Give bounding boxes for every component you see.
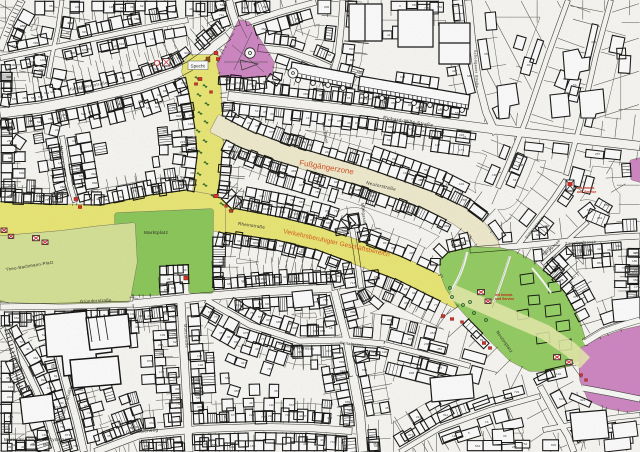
svg-text:946: 946 <box>154 67 159 71</box>
svg-text:941: 941 <box>355 121 360 125</box>
svg-text:200: 200 <box>195 378 200 382</box>
svg-text:375: 375 <box>197 405 202 409</box>
svg-text:122: 122 <box>8 385 13 389</box>
svg-text:290: 290 <box>138 99 143 103</box>
svg-text:562: 562 <box>134 17 139 21</box>
svg-text:104: 104 <box>188 122 193 126</box>
svg-text:43: 43 <box>26 347 30 351</box>
svg-text:110: 110 <box>403 171 408 175</box>
svg-text:555: 555 <box>31 96 36 100</box>
svg-text:920: 920 <box>371 350 376 354</box>
svg-text:350: 350 <box>141 187 146 191</box>
svg-text:909: 909 <box>265 302 270 306</box>
svg-text:49: 49 <box>249 401 253 405</box>
svg-text:377: 377 <box>408 433 413 437</box>
svg-text:634: 634 <box>6 75 11 79</box>
svg-text:905: 905 <box>355 188 360 192</box>
svg-text:377: 377 <box>573 295 578 299</box>
svg-text:308: 308 <box>518 163 523 167</box>
svg-text:247: 247 <box>8 184 13 188</box>
svg-text:997: 997 <box>234 340 239 344</box>
svg-text:378: 378 <box>268 160 273 164</box>
svg-text:888: 888 <box>20 24 25 28</box>
svg-text:399: 399 <box>33 41 38 45</box>
svg-text:996: 996 <box>392 157 397 161</box>
svg-text:517: 517 <box>255 109 260 113</box>
svg-text:571: 571 <box>20 340 25 344</box>
svg-text:6: 6 <box>66 443 68 447</box>
svg-text:975: 975 <box>325 209 330 213</box>
svg-text:Specht: Specht <box>191 64 206 69</box>
svg-text:351: 351 <box>104 198 109 202</box>
svg-text:784: 784 <box>172 332 177 336</box>
svg-text:723: 723 <box>87 411 92 415</box>
svg-text:452: 452 <box>437 347 442 351</box>
svg-text:351: 351 <box>373 442 378 446</box>
svg-text:40: 40 <box>299 414 303 418</box>
svg-text:894: 894 <box>176 114 181 118</box>
svg-text:604: 604 <box>334 180 339 184</box>
svg-text:547: 547 <box>387 138 392 142</box>
svg-text:889: 889 <box>255 277 260 281</box>
svg-text:64: 64 <box>421 129 425 133</box>
svg-text:513: 513 <box>513 178 518 182</box>
svg-text:765: 765 <box>60 425 65 429</box>
svg-text:180: 180 <box>632 259 637 263</box>
svg-text:386: 386 <box>255 124 260 128</box>
svg-text:871: 871 <box>303 414 308 418</box>
svg-text:353: 353 <box>178 183 183 187</box>
svg-text:774: 774 <box>434 303 439 307</box>
svg-text:896: 896 <box>70 51 75 55</box>
svg-text:558: 558 <box>604 203 609 207</box>
svg-text:479: 479 <box>418 178 423 182</box>
svg-text:511: 511 <box>443 413 448 417</box>
svg-text:668: 668 <box>8 156 13 160</box>
svg-text:658: 658 <box>374 275 379 279</box>
svg-text:453: 453 <box>6 376 11 380</box>
svg-text:497: 497 <box>244 152 249 156</box>
svg-text:522: 522 <box>340 369 345 373</box>
svg-text:307: 307 <box>391 246 396 250</box>
svg-text:864: 864 <box>416 106 421 110</box>
svg-text:249: 249 <box>175 406 180 410</box>
svg-text:851: 851 <box>503 396 508 400</box>
svg-text:730: 730 <box>170 315 175 319</box>
svg-text:879: 879 <box>147 359 152 363</box>
svg-text:517: 517 <box>30 314 35 318</box>
svg-text:1: 1 <box>166 441 168 445</box>
svg-text:450: 450 <box>295 17 300 21</box>
svg-text:353: 353 <box>430 331 435 335</box>
svg-text:802: 802 <box>253 241 258 245</box>
svg-text:886: 886 <box>163 89 168 93</box>
svg-text:575: 575 <box>314 176 319 180</box>
svg-text:969: 969 <box>137 73 142 77</box>
svg-text:15: 15 <box>329 326 333 330</box>
svg-text:771: 771 <box>214 315 219 319</box>
svg-text:725: 725 <box>242 6 247 10</box>
svg-text:378: 378 <box>269 130 274 134</box>
svg-text:63: 63 <box>43 443 47 447</box>
svg-text:721: 721 <box>56 116 61 120</box>
svg-text:650: 650 <box>176 396 181 400</box>
svg-text:782: 782 <box>544 224 549 228</box>
svg-text:999: 999 <box>171 286 176 290</box>
svg-text:861: 861 <box>319 93 324 97</box>
svg-text:601: 601 <box>559 397 564 401</box>
svg-text:160: 160 <box>250 444 255 448</box>
svg-text:148: 148 <box>364 234 369 238</box>
svg-text:621: 621 <box>236 303 241 307</box>
svg-text:516: 516 <box>225 78 230 82</box>
svg-text:352: 352 <box>78 388 83 392</box>
svg-text:16: 16 <box>485 420 489 424</box>
svg-text:808: 808 <box>261 277 266 281</box>
svg-text:878: 878 <box>155 105 160 109</box>
svg-text:35: 35 <box>391 101 395 105</box>
svg-text:830: 830 <box>258 302 263 306</box>
svg-text:719: 719 <box>282 167 287 171</box>
svg-text:455: 455 <box>294 276 299 280</box>
svg-text:644: 644 <box>326 276 331 280</box>
svg-text:301: 301 <box>270 112 275 116</box>
svg-text:947: 947 <box>412 291 417 295</box>
svg-text:96: 96 <box>227 335 231 339</box>
svg-text:293: 293 <box>268 414 273 418</box>
svg-text:542: 542 <box>475 444 480 448</box>
svg-text:197: 197 <box>435 143 440 147</box>
svg-text:640: 640 <box>183 184 188 188</box>
svg-text:242: 242 <box>7 395 12 399</box>
svg-text:203: 203 <box>218 26 223 30</box>
svg-text:951: 951 <box>366 158 371 162</box>
svg-text:343: 343 <box>50 90 55 94</box>
svg-text:807: 807 <box>465 239 470 243</box>
svg-text:886: 886 <box>92 181 97 185</box>
svg-text:379: 379 <box>78 182 83 186</box>
svg-text:781: 781 <box>86 47 91 51</box>
svg-text:273: 273 <box>172 309 177 313</box>
svg-text:56: 56 <box>293 138 297 142</box>
svg-text:41: 41 <box>387 33 391 37</box>
svg-text:309: 309 <box>310 218 315 222</box>
svg-text:734: 734 <box>330 440 335 444</box>
svg-text:53: 53 <box>12 44 16 48</box>
svg-text:829: 829 <box>408 337 413 341</box>
svg-text:542: 542 <box>229 445 234 449</box>
svg-text:548: 548 <box>313 329 318 333</box>
svg-text:729: 729 <box>514 390 519 394</box>
svg-text:108: 108 <box>130 312 135 316</box>
svg-text:802: 802 <box>235 150 240 154</box>
svg-text:610: 610 <box>587 208 592 212</box>
svg-text:313: 313 <box>237 239 242 243</box>
svg-text:334: 334 <box>149 421 154 425</box>
svg-text:615: 615 <box>12 443 17 447</box>
svg-text:378: 378 <box>343 265 348 269</box>
svg-text:703: 703 <box>622 266 627 270</box>
svg-text:735: 735 <box>551 265 556 269</box>
svg-text:96: 96 <box>341 441 345 445</box>
svg-text:498: 498 <box>327 416 332 420</box>
svg-text:109: 109 <box>160 333 165 337</box>
svg-text:746: 746 <box>7 121 12 125</box>
svg-text:185: 185 <box>146 106 151 110</box>
svg-text:824: 824 <box>350 58 355 62</box>
svg-text:Marie-Schongauer-Gymnasium: Marie-Schongauer-Gymnasium <box>4 437 76 442</box>
svg-text:81: 81 <box>54 374 58 378</box>
svg-text:622: 622 <box>119 42 124 46</box>
svg-text:250: 250 <box>7 139 12 143</box>
svg-text:193: 193 <box>452 434 457 438</box>
svg-text:347: 347 <box>210 356 215 360</box>
svg-text:556: 556 <box>79 174 84 178</box>
svg-text:765: 765 <box>323 298 328 302</box>
svg-text:298: 298 <box>451 243 456 247</box>
svg-text:384: 384 <box>437 5 442 9</box>
svg-text:864: 864 <box>204 442 209 446</box>
svg-text:388: 388 <box>159 352 164 356</box>
svg-text:41: 41 <box>167 277 171 281</box>
svg-text:5: 5 <box>215 438 217 442</box>
svg-text:975: 975 <box>243 331 248 335</box>
svg-text:650: 650 <box>173 376 178 380</box>
svg-text:887: 887 <box>263 80 268 84</box>
svg-text:907: 907 <box>536 233 541 237</box>
svg-text:580: 580 <box>196 396 201 400</box>
svg-text:233: 233 <box>191 146 196 150</box>
svg-text:525: 525 <box>349 272 354 276</box>
svg-text:801: 801 <box>163 129 168 133</box>
svg-text:83: 83 <box>527 63 531 67</box>
svg-text:367: 367 <box>219 331 224 335</box>
svg-text:709: 709 <box>224 184 229 188</box>
svg-text:409: 409 <box>259 194 264 198</box>
svg-text:499: 499 <box>350 310 355 314</box>
svg-text:211: 211 <box>273 78 278 82</box>
svg-text:591: 591 <box>401 203 406 207</box>
svg-text:707: 707 <box>370 282 375 286</box>
svg-text:498: 498 <box>409 251 414 255</box>
svg-text:321: 321 <box>580 398 585 402</box>
svg-text:180: 180 <box>298 350 303 354</box>
svg-text:682: 682 <box>14 316 19 320</box>
svg-text:355: 355 <box>227 282 232 286</box>
svg-text:705: 705 <box>285 413 290 417</box>
svg-text:286: 286 <box>337 119 342 123</box>
svg-text:308: 308 <box>175 387 180 391</box>
svg-text:910: 910 <box>303 216 308 220</box>
svg-text:und Service: und Service <box>495 297 514 301</box>
svg-text:211: 211 <box>416 415 421 419</box>
svg-text:758: 758 <box>48 117 53 121</box>
svg-text:898: 898 <box>228 145 233 149</box>
svg-text:688: 688 <box>388 125 393 129</box>
svg-text:527: 527 <box>199 390 204 394</box>
svg-text:429: 429 <box>338 351 343 355</box>
svg-text:482: 482 <box>291 169 296 173</box>
svg-text:470: 470 <box>439 131 444 135</box>
svg-text:417: 417 <box>241 361 246 365</box>
svg-text:526: 526 <box>459 241 464 245</box>
svg-text:338: 338 <box>404 301 409 305</box>
svg-text:140: 140 <box>556 372 561 376</box>
svg-text:763: 763 <box>290 198 295 202</box>
svg-text:433: 433 <box>347 121 352 125</box>
svg-text:244: 244 <box>158 443 163 447</box>
svg-text:33: 33 <box>503 434 507 438</box>
svg-text:787: 787 <box>254 204 259 208</box>
svg-text:323: 323 <box>597 247 602 251</box>
svg-text:139: 139 <box>208 310 213 314</box>
svg-text:525: 525 <box>81 112 86 116</box>
svg-text:826: 826 <box>551 443 556 447</box>
svg-text:387: 387 <box>274 389 279 393</box>
svg-text:433: 433 <box>147 314 152 318</box>
svg-text:306: 306 <box>292 326 297 330</box>
svg-text:99: 99 <box>361 355 365 359</box>
svg-text:190: 190 <box>349 186 354 190</box>
svg-text:270: 270 <box>247 121 252 125</box>
svg-text:84: 84 <box>383 241 387 245</box>
svg-text:898: 898 <box>387 318 392 322</box>
svg-text:und Service: und Service <box>577 190 596 194</box>
svg-text:95: 95 <box>62 113 66 117</box>
svg-text:516: 516 <box>263 5 268 9</box>
svg-text:568: 568 <box>220 3 225 7</box>
svg-text:19: 19 <box>306 116 310 120</box>
svg-text:663: 663 <box>200 43 205 47</box>
svg-text:316: 316 <box>130 5 135 9</box>
svg-text:80: 80 <box>294 212 298 216</box>
svg-text:543: 543 <box>424 168 429 172</box>
svg-text:359: 359 <box>107 434 112 438</box>
svg-text:953: 953 <box>84 404 89 408</box>
svg-text:97: 97 <box>118 102 122 106</box>
svg-text:243: 243 <box>55 128 60 132</box>
svg-text:278: 278 <box>208 32 213 36</box>
svg-text:404: 404 <box>184 51 189 55</box>
svg-text:734: 734 <box>349 419 354 423</box>
svg-text:674: 674 <box>400 75 405 79</box>
svg-text:353: 353 <box>234 389 239 393</box>
svg-text:215: 215 <box>180 140 185 144</box>
svg-text:38: 38 <box>578 248 582 252</box>
svg-text:888: 888 <box>38 72 43 76</box>
svg-text:53: 53 <box>573 83 577 87</box>
svg-text:316: 316 <box>290 246 295 250</box>
svg-text:47: 47 <box>66 31 70 35</box>
svg-text:884: 884 <box>44 91 49 95</box>
svg-text:250: 250 <box>26 62 31 66</box>
svg-text:928: 928 <box>120 76 125 80</box>
svg-text:582: 582 <box>290 436 295 440</box>
svg-text:166: 166 <box>61 192 66 196</box>
svg-text:482: 482 <box>39 195 44 199</box>
svg-text:433: 433 <box>320 438 325 442</box>
svg-text:352: 352 <box>607 248 612 252</box>
svg-text:146: 146 <box>40 58 45 62</box>
svg-text:363: 363 <box>267 207 272 211</box>
svg-text:838: 838 <box>409 371 414 375</box>
svg-text:175: 175 <box>459 148 464 152</box>
svg-text:886: 886 <box>30 443 35 447</box>
svg-text:712: 712 <box>172 106 177 110</box>
svg-text:586: 586 <box>357 70 362 74</box>
svg-text:143: 143 <box>571 248 576 252</box>
svg-text:865: 865 <box>345 400 350 404</box>
svg-text:483: 483 <box>51 363 56 367</box>
svg-text:722: 722 <box>287 137 292 141</box>
svg-text:472: 472 <box>591 40 596 44</box>
svg-text:196: 196 <box>198 363 203 367</box>
svg-text:475: 475 <box>634 251 639 255</box>
svg-text:970: 970 <box>88 198 93 202</box>
svg-text:118: 118 <box>382 350 387 354</box>
svg-text:682: 682 <box>307 143 312 147</box>
svg-text:965: 965 <box>31 184 36 188</box>
svg-text:356: 356 <box>484 52 489 56</box>
svg-text:286: 286 <box>158 343 163 347</box>
svg-text:247: 247 <box>326 349 331 353</box>
svg-text:755: 755 <box>461 198 466 202</box>
svg-text:485: 485 <box>247 202 252 206</box>
svg-text:666: 666 <box>326 221 331 225</box>
svg-text:39: 39 <box>256 81 260 85</box>
svg-text:62: 62 <box>140 4 144 8</box>
svg-text:301: 301 <box>266 318 271 322</box>
svg-text:999: 999 <box>181 81 186 85</box>
svg-text:268: 268 <box>60 185 65 189</box>
svg-text:179: 179 <box>634 285 639 289</box>
svg-text:954: 954 <box>320 329 325 333</box>
svg-text:778: 778 <box>5 427 10 431</box>
svg-text:79: 79 <box>245 239 249 243</box>
svg-text:3: 3 <box>399 4 401 8</box>
svg-text:54: 54 <box>238 201 242 205</box>
svg-text:382: 382 <box>633 278 638 282</box>
svg-text:669: 669 <box>412 3 417 7</box>
svg-text:462: 462 <box>135 325 140 329</box>
svg-text:384: 384 <box>444 224 449 228</box>
svg-text:77: 77 <box>261 337 265 341</box>
svg-text:857: 857 <box>164 288 169 292</box>
svg-text:627: 627 <box>173 340 178 344</box>
svg-text:713: 713 <box>350 281 355 285</box>
svg-text:319: 319 <box>29 119 34 123</box>
svg-text:533: 533 <box>342 229 347 233</box>
svg-text:105: 105 <box>279 244 284 248</box>
svg-text:241: 241 <box>219 260 224 264</box>
svg-text:895: 895 <box>339 360 344 364</box>
svg-text:714: 714 <box>334 209 339 213</box>
svg-text:966: 966 <box>118 195 123 199</box>
svg-text:892: 892 <box>349 47 354 51</box>
svg-text:175: 175 <box>159 370 164 374</box>
svg-text:872: 872 <box>10 193 15 197</box>
svg-text:70: 70 <box>411 177 415 181</box>
svg-text:115: 115 <box>150 37 155 41</box>
svg-text:815: 815 <box>239 81 244 85</box>
svg-text:485: 485 <box>22 96 27 100</box>
svg-text:591: 591 <box>299 250 304 254</box>
svg-text:697: 697 <box>82 30 87 34</box>
svg-text:881: 881 <box>597 261 602 265</box>
svg-text:733: 733 <box>133 189 138 193</box>
svg-text:838: 838 <box>38 95 43 99</box>
svg-text:336: 336 <box>72 139 77 143</box>
